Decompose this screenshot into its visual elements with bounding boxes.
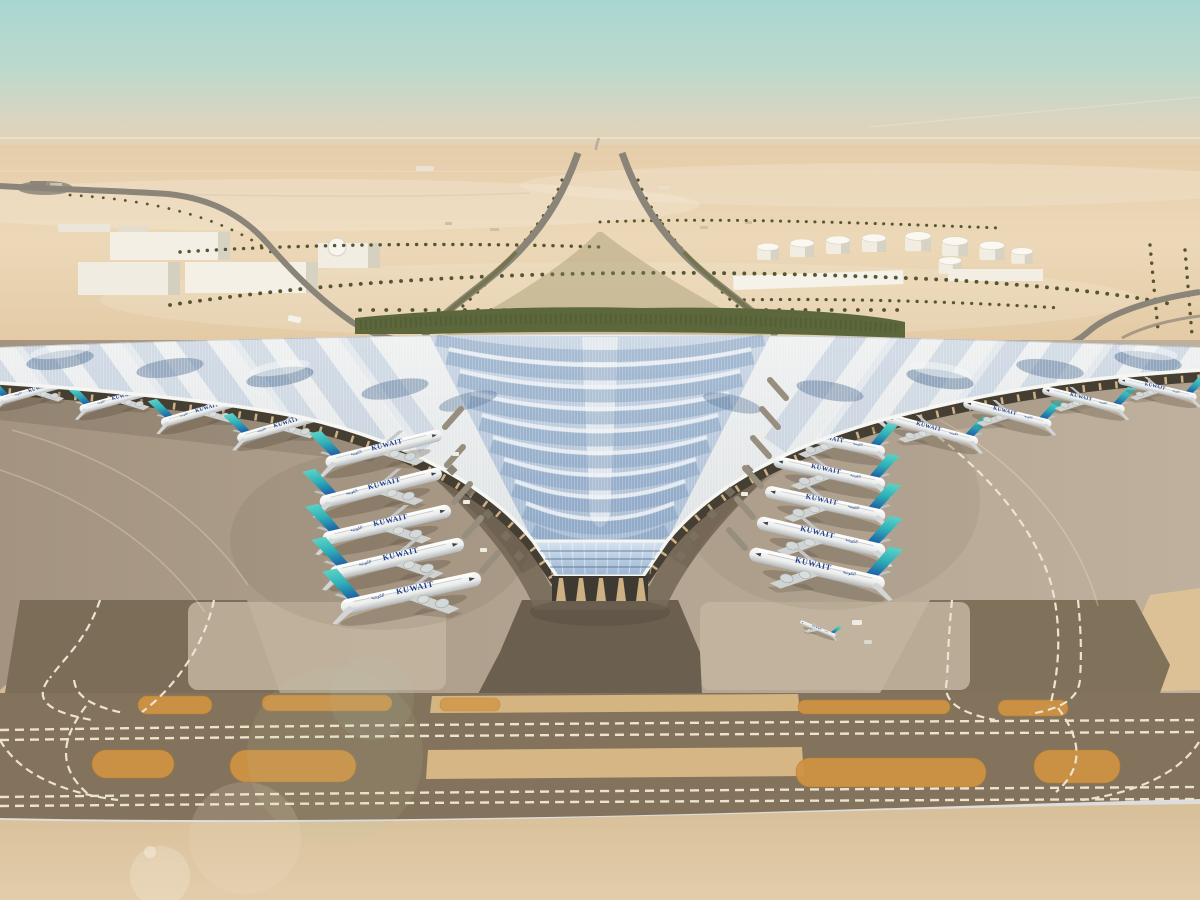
sky — [0, 0, 1200, 150]
airport-rendering: Aerial architectural rendering of a dese… — [0, 0, 1200, 900]
sky-gradient — [0, 0, 1200, 150]
warehouse — [948, 269, 1043, 281]
fuel-tank — [942, 237, 968, 256]
scene-canvas: Aerial architectural rendering of a dese… — [0, 0, 1200, 900]
hold-marking — [798, 700, 950, 714]
fuel-tank — [790, 239, 814, 257]
hold-marking — [998, 700, 1068, 716]
fuel-tank — [979, 241, 1004, 260]
hold-marking — [92, 750, 174, 778]
fuel-tank — [905, 232, 931, 251]
terminal-entrance — [533, 541, 667, 601]
concrete-pad — [700, 602, 970, 690]
hold-marking — [138, 696, 212, 714]
fuel-tank — [1011, 248, 1033, 264]
hold-marking — [796, 758, 986, 787]
fuel-tank — [757, 243, 779, 260]
sand-strip — [426, 747, 804, 779]
fuel-tank — [862, 234, 886, 252]
hold-marking — [440, 698, 500, 711]
fuel-tank — [826, 236, 850, 254]
hold-marking — [1034, 750, 1120, 783]
